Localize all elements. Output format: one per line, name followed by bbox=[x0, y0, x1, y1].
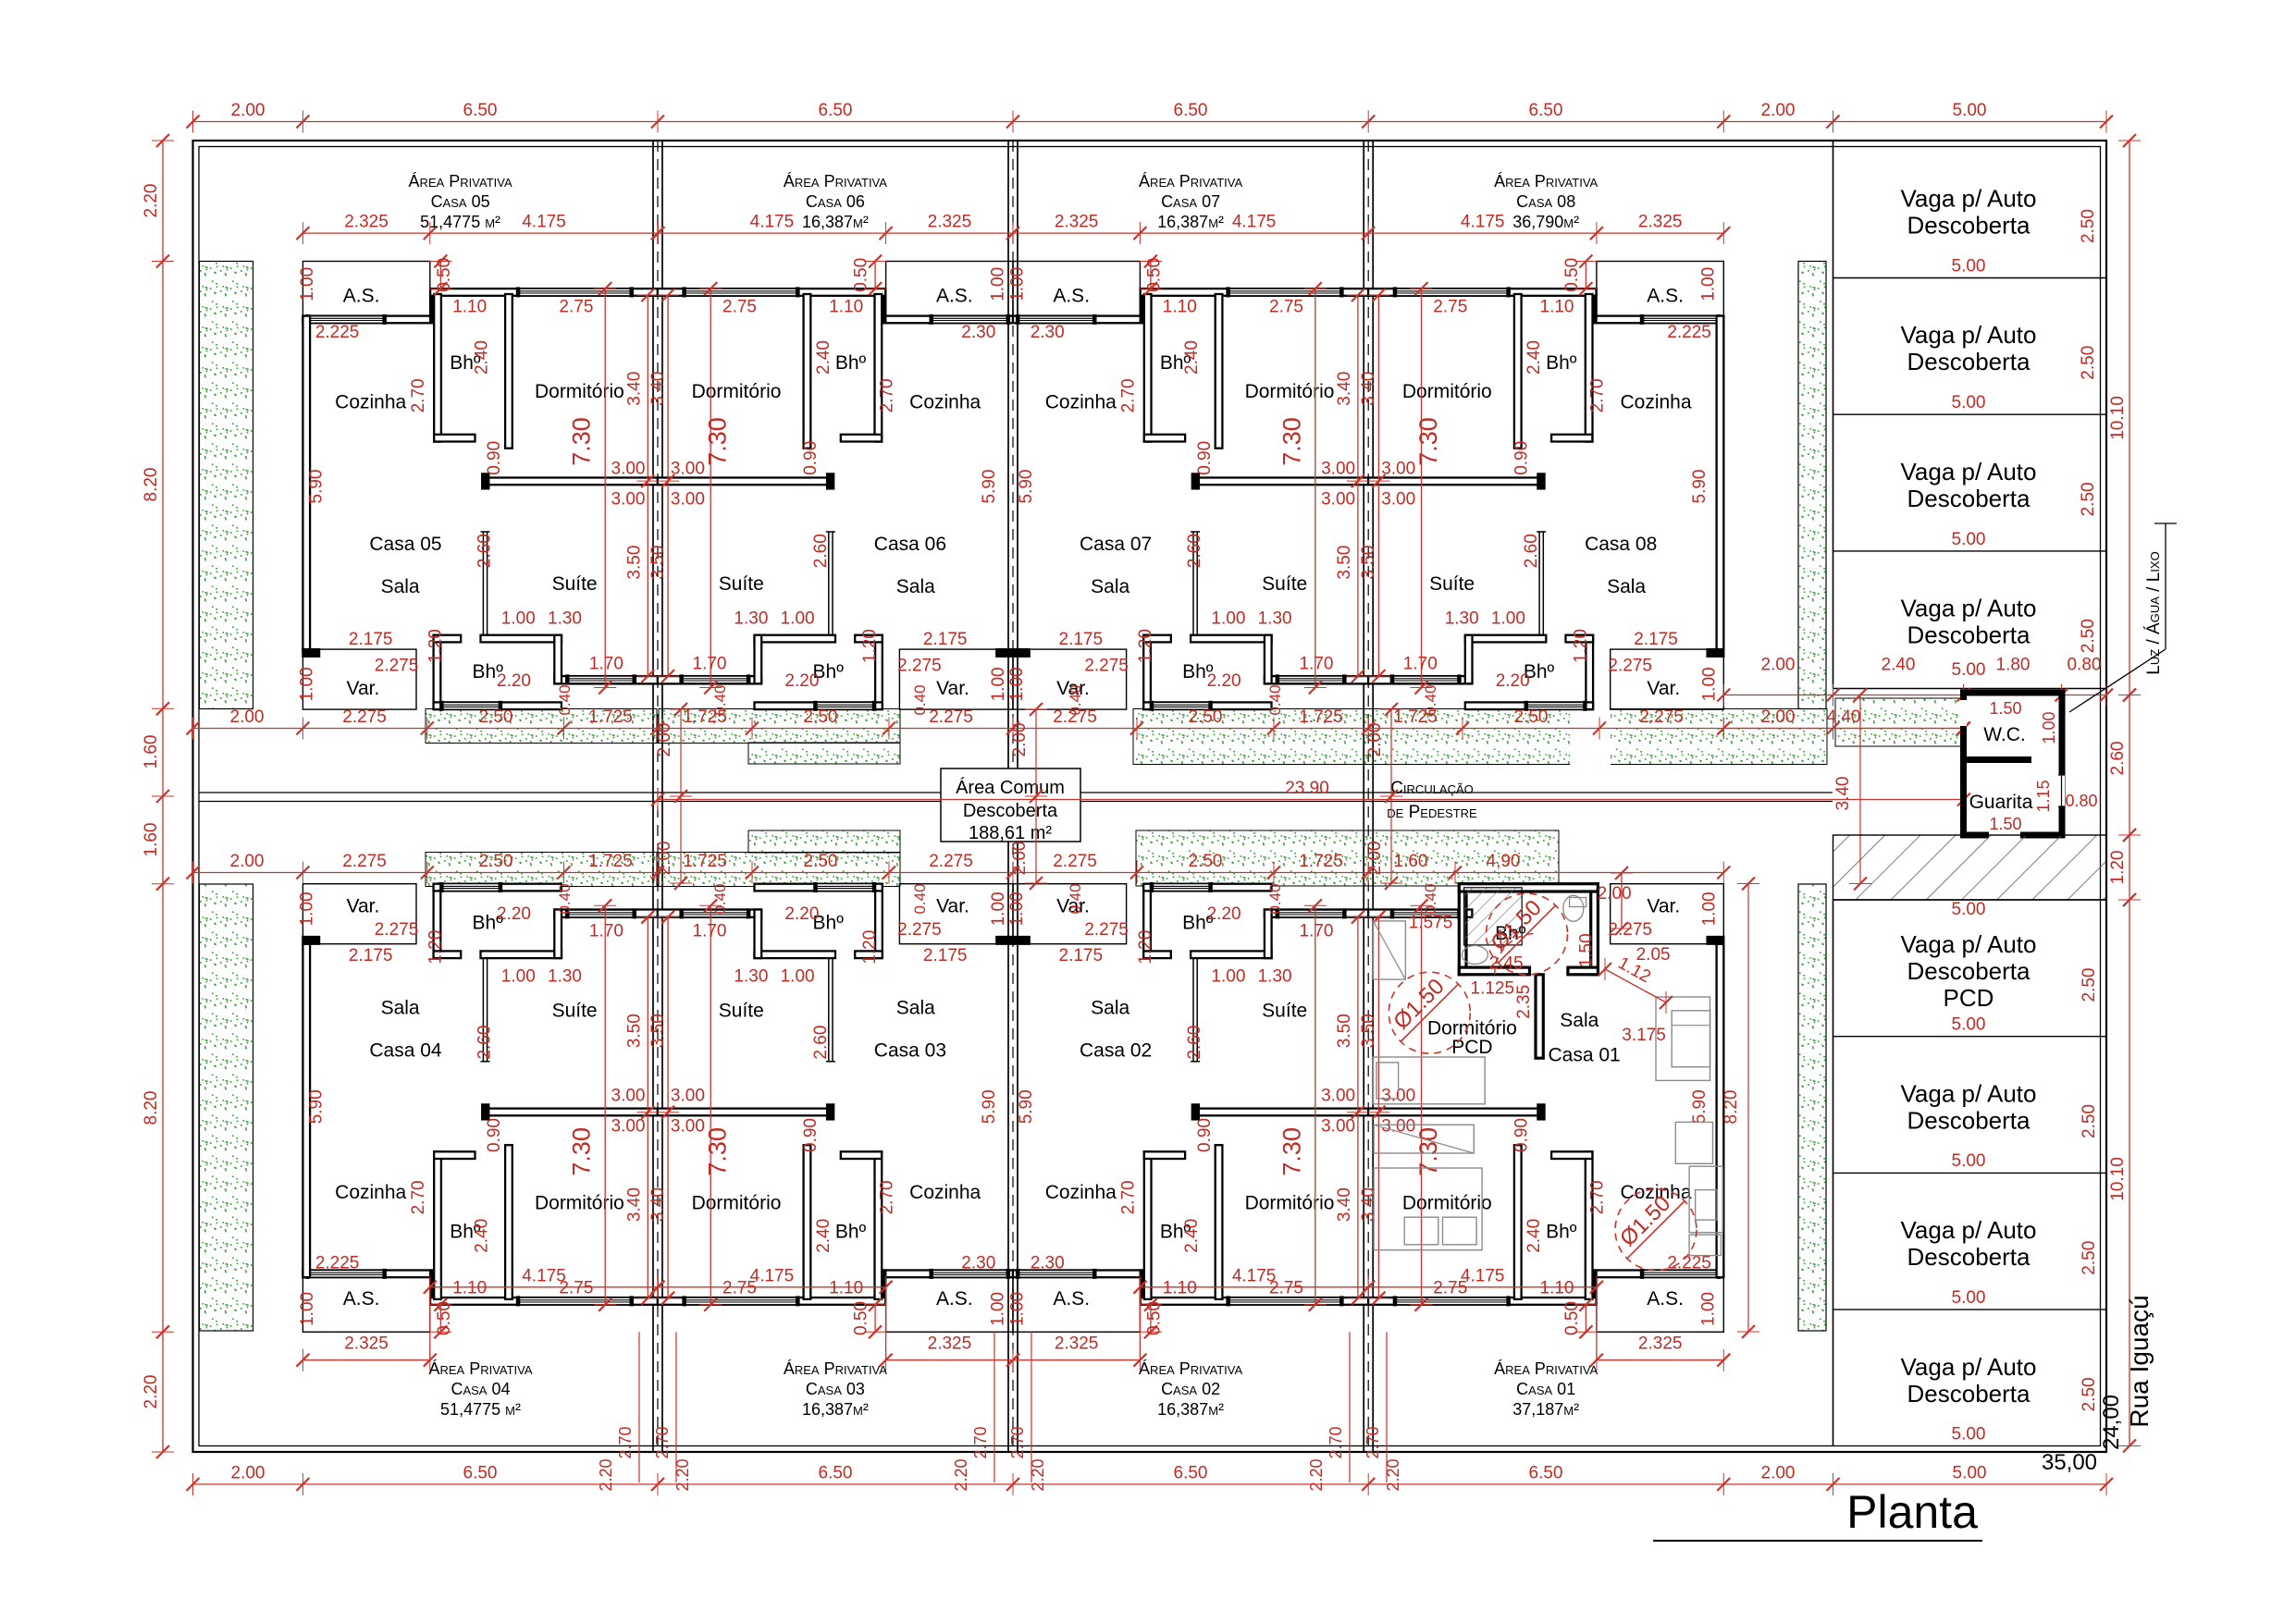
svg-text:2.40: 2.40 bbox=[1882, 656, 1916, 675]
svg-text:5.90: 5.90 bbox=[307, 470, 327, 504]
svg-text:2.20: 2.20 bbox=[1307, 1458, 1326, 1491]
svg-text:Área Privativa: Área Privativa bbox=[784, 1359, 887, 1378]
svg-text:Dormitório: Dormitório bbox=[692, 381, 782, 402]
svg-text:4.40: 4.40 bbox=[1827, 707, 1861, 727]
svg-text:2.50: 2.50 bbox=[2080, 1241, 2099, 1275]
svg-text:3.50: 3.50 bbox=[648, 546, 668, 580]
svg-text:Bhº: Bhº bbox=[835, 1221, 867, 1242]
svg-text:2.325: 2.325 bbox=[1638, 213, 1683, 232]
svg-text:Cozinha: Cozinha bbox=[335, 1182, 406, 1203]
svg-text:2.05: 2.05 bbox=[1636, 945, 1671, 965]
svg-text:Vaga p/ Auto: Vaga p/ Auto bbox=[1901, 1216, 2037, 1244]
svg-text:2.60: 2.60 bbox=[811, 1026, 831, 1060]
svg-text:Sala: Sala bbox=[381, 576, 420, 597]
svg-text:5.90: 5.90 bbox=[1017, 1089, 1036, 1124]
svg-text:1.10: 1.10 bbox=[829, 298, 863, 317]
svg-text:2.20: 2.20 bbox=[784, 671, 819, 691]
svg-text:2.60: 2.60 bbox=[1185, 1026, 1204, 1060]
svg-text:7.30: 7.30 bbox=[568, 1127, 596, 1176]
svg-text:2.70: 2.70 bbox=[616, 1426, 635, 1458]
svg-text:2.75: 2.75 bbox=[559, 298, 593, 317]
svg-text:2.00: 2.00 bbox=[1761, 1464, 1796, 1483]
svg-text:Vaga p/ Auto: Vaga p/ Auto bbox=[1901, 185, 2037, 213]
svg-text:0.40: 0.40 bbox=[556, 883, 574, 914]
svg-text:2.275: 2.275 bbox=[1608, 920, 1652, 940]
svg-text:2.225: 2.225 bbox=[1667, 323, 1711, 342]
svg-text:2.00: 2.00 bbox=[1010, 723, 1030, 757]
svg-text:4.175: 4.175 bbox=[1232, 213, 1277, 232]
svg-text:2.00: 2.00 bbox=[1365, 723, 1385, 757]
svg-text:0.90: 0.90 bbox=[1512, 1118, 1532, 1152]
svg-text:2.00: 2.00 bbox=[1761, 101, 1796, 120]
svg-text:1.30: 1.30 bbox=[1258, 967, 1292, 987]
svg-text:2.60: 2.60 bbox=[475, 534, 495, 568]
svg-text:Dormitório: Dormitório bbox=[1245, 1193, 1335, 1214]
svg-text:2.50: 2.50 bbox=[2079, 209, 2098, 243]
svg-text:2.50: 2.50 bbox=[1189, 707, 1223, 727]
svg-text:2.30: 2.30 bbox=[961, 323, 995, 342]
svg-text:2.50: 2.50 bbox=[2080, 1377, 2099, 1411]
svg-text:1.725: 1.725 bbox=[683, 852, 727, 871]
svg-text:1.80: 1.80 bbox=[1996, 656, 2031, 675]
svg-text:3.40: 3.40 bbox=[625, 372, 645, 406]
svg-text:2.70: 2.70 bbox=[971, 1426, 990, 1458]
svg-text:1.60: 1.60 bbox=[142, 823, 161, 857]
svg-text:3.00: 3.00 bbox=[671, 1087, 705, 1106]
svg-text:2.325: 2.325 bbox=[1055, 213, 1099, 232]
svg-text:Bhº: Bhº bbox=[1546, 1221, 1577, 1242]
svg-text:0.80: 0.80 bbox=[2065, 792, 2097, 810]
svg-text:5.90: 5.90 bbox=[980, 470, 999, 504]
svg-text:7.30: 7.30 bbox=[1414, 417, 1442, 466]
svg-text:2.325: 2.325 bbox=[928, 213, 972, 232]
svg-text:2.60: 2.60 bbox=[1185, 534, 1204, 568]
svg-text:3.00: 3.00 bbox=[671, 1117, 705, 1137]
svg-text:2.20: 2.20 bbox=[1029, 1458, 1047, 1491]
svg-text:0.50: 0.50 bbox=[435, 1301, 454, 1335]
svg-text:W.C.: W.C. bbox=[1983, 724, 2026, 745]
svg-text:0.50: 0.50 bbox=[852, 1301, 871, 1335]
svg-text:3.00: 3.00 bbox=[1321, 490, 1355, 510]
svg-text:0.50: 0.50 bbox=[1562, 1301, 1582, 1335]
svg-text:1.00: 1.00 bbox=[1007, 667, 1027, 701]
svg-text:1.30: 1.30 bbox=[1445, 609, 1479, 629]
svg-text:2.225: 2.225 bbox=[1667, 1253, 1711, 1273]
svg-text:Luz / Água / Lixo: Luz / Água / Lixo bbox=[2144, 551, 2164, 674]
svg-text:1.575: 1.575 bbox=[1409, 914, 1453, 933]
svg-text:2.275: 2.275 bbox=[375, 656, 419, 675]
svg-text:2.00: 2.00 bbox=[1010, 842, 1030, 876]
svg-text:5.90: 5.90 bbox=[1690, 470, 1710, 504]
svg-text:24,00: 24,00 bbox=[2099, 1395, 2124, 1450]
svg-text:1.00: 1.00 bbox=[297, 891, 316, 926]
svg-text:51,4775 m²: 51,4775 m² bbox=[420, 213, 500, 231]
svg-text:6.50: 6.50 bbox=[1174, 1464, 1208, 1483]
svg-text:Cozinha: Cozinha bbox=[1620, 392, 1691, 413]
svg-text:2.50: 2.50 bbox=[2079, 619, 2098, 653]
svg-text:0.40: 0.40 bbox=[711, 883, 729, 914]
svg-text:2.50: 2.50 bbox=[1189, 852, 1223, 871]
svg-text:2.70: 2.70 bbox=[409, 1180, 428, 1214]
svg-text:10.10: 10.10 bbox=[2108, 1157, 2128, 1201]
svg-text:5.90: 5.90 bbox=[980, 1089, 999, 1124]
svg-text:1.00: 1.00 bbox=[1007, 891, 1027, 926]
svg-text:2.60: 2.60 bbox=[475, 1026, 495, 1060]
svg-text:1.20: 1.20 bbox=[860, 930, 880, 965]
svg-text:3.00: 3.00 bbox=[611, 460, 646, 479]
svg-text:3.50: 3.50 bbox=[1359, 546, 1378, 580]
svg-text:0.90: 0.90 bbox=[801, 1118, 821, 1152]
svg-text:3.00: 3.00 bbox=[1381, 460, 1415, 479]
svg-text:3.00: 3.00 bbox=[1321, 460, 1355, 479]
svg-text:2.50: 2.50 bbox=[2080, 1104, 2099, 1138]
svg-text:2.40: 2.40 bbox=[473, 340, 492, 375]
svg-text:1.50: 1.50 bbox=[1989, 815, 2021, 833]
svg-text:Área Privativa: Área Privativa bbox=[1139, 172, 1242, 191]
svg-text:1.00: 1.00 bbox=[298, 267, 317, 301]
svg-text:1.00: 1.00 bbox=[989, 667, 1008, 701]
svg-text:1.00: 1.00 bbox=[2040, 711, 2058, 744]
svg-text:2.20: 2.20 bbox=[1207, 671, 1241, 691]
svg-text:Suíte: Suíte bbox=[1262, 1001, 1307, 1022]
svg-text:1.00: 1.00 bbox=[1008, 267, 1028, 301]
svg-text:2.40: 2.40 bbox=[1182, 340, 1202, 375]
svg-text:5.00: 5.00 bbox=[1953, 101, 1987, 120]
svg-text:2.45: 2.45 bbox=[1489, 953, 1524, 973]
svg-text:2.00: 2.00 bbox=[1761, 656, 1796, 675]
svg-text:2.20: 2.20 bbox=[673, 1458, 692, 1491]
svg-text:6.50: 6.50 bbox=[819, 1464, 853, 1483]
svg-text:1.10: 1.10 bbox=[1163, 1279, 1197, 1298]
svg-text:Cozinha: Cozinha bbox=[1045, 1182, 1117, 1203]
svg-text:5.00: 5.00 bbox=[1952, 1425, 1986, 1445]
svg-text:Casa 01: Casa 01 bbox=[1548, 1044, 1620, 1065]
svg-text:Descoberta: Descoberta bbox=[1907, 1380, 2031, 1408]
svg-text:35,00: 35,00 bbox=[2042, 1450, 2097, 1475]
svg-text:2.00: 2.00 bbox=[655, 723, 674, 757]
svg-text:A.S.: A.S. bbox=[1053, 1288, 1090, 1309]
svg-text:2.50: 2.50 bbox=[479, 852, 513, 871]
svg-text:1.60: 1.60 bbox=[1394, 852, 1428, 871]
svg-text:1.70: 1.70 bbox=[693, 655, 727, 674]
svg-text:2.00: 2.00 bbox=[1365, 842, 1385, 876]
svg-text:2.30: 2.30 bbox=[1031, 323, 1065, 342]
svg-text:37,187m²: 37,187m² bbox=[1512, 1400, 1579, 1419]
svg-text:1.00: 1.00 bbox=[989, 891, 1008, 926]
svg-text:0.50: 0.50 bbox=[852, 258, 871, 292]
svg-text:de Pedestre: de Pedestre bbox=[1387, 803, 1477, 822]
svg-text:Área Privativa: Área Privativa bbox=[409, 172, 512, 191]
svg-text:2.75: 2.75 bbox=[722, 298, 757, 317]
svg-text:Var.: Var. bbox=[936, 896, 969, 917]
svg-text:3.50: 3.50 bbox=[1335, 1014, 1354, 1048]
svg-text:Suíte: Suíte bbox=[552, 573, 598, 595]
svg-text:1.50: 1.50 bbox=[1989, 699, 2021, 718]
svg-text:51,4775 m²: 51,4775 m² bbox=[440, 1400, 521, 1419]
svg-text:2.70: 2.70 bbox=[409, 378, 428, 412]
svg-text:A.S.: A.S. bbox=[936, 286, 973, 307]
svg-text:2.175: 2.175 bbox=[349, 946, 393, 965]
svg-text:2.275: 2.275 bbox=[342, 852, 387, 871]
svg-text:Casa 01: Casa 01 bbox=[1516, 1380, 1575, 1398]
svg-text:Cozinha: Cozinha bbox=[335, 392, 406, 413]
svg-text:5.90: 5.90 bbox=[1690, 1089, 1710, 1124]
svg-text:0.40: 0.40 bbox=[911, 684, 929, 715]
svg-text:PCD: PCD bbox=[1451, 1037, 1492, 1058]
svg-text:2.20: 2.20 bbox=[1496, 671, 1530, 691]
svg-text:2.175: 2.175 bbox=[1634, 630, 1678, 649]
svg-text:0.40: 0.40 bbox=[1067, 684, 1084, 715]
svg-text:7.30: 7.30 bbox=[704, 417, 732, 466]
svg-text:Casa 05: Casa 05 bbox=[431, 192, 490, 211]
svg-text:2.75: 2.75 bbox=[1269, 1279, 1303, 1298]
svg-text:1.20: 1.20 bbox=[426, 930, 445, 965]
svg-text:2.175: 2.175 bbox=[923, 946, 968, 965]
svg-text:6.50: 6.50 bbox=[463, 1464, 498, 1483]
svg-text:Var.: Var. bbox=[1647, 678, 1680, 699]
svg-text:2.40: 2.40 bbox=[1524, 1219, 1544, 1253]
svg-text:Guarita: Guarita bbox=[1969, 792, 2033, 813]
svg-text:1.00: 1.00 bbox=[1699, 1292, 1719, 1326]
svg-text:Cozinha: Cozinha bbox=[909, 392, 981, 413]
svg-text:0.50: 0.50 bbox=[435, 258, 454, 292]
svg-text:Suíte: Suíte bbox=[719, 1001, 764, 1022]
svg-text:2.70: 2.70 bbox=[1588, 1180, 1608, 1214]
svg-text:3.50: 3.50 bbox=[625, 546, 645, 580]
svg-text:Dormitório: Dormitório bbox=[1402, 381, 1492, 402]
svg-text:2.20: 2.20 bbox=[142, 1375, 161, 1409]
svg-text:Descoberta: Descoberta bbox=[1907, 348, 2031, 375]
svg-text:1.70: 1.70 bbox=[589, 655, 623, 674]
svg-text:1.20: 1.20 bbox=[2108, 851, 2128, 885]
svg-text:2.325: 2.325 bbox=[928, 1334, 972, 1354]
svg-text:0.40: 0.40 bbox=[1067, 883, 1084, 914]
svg-text:1.20: 1.20 bbox=[1571, 629, 1590, 663]
svg-text:4,90: 4,90 bbox=[1487, 852, 1521, 871]
svg-text:1.20: 1.20 bbox=[860, 629, 880, 663]
svg-text:1.00: 1.00 bbox=[1699, 667, 1719, 701]
svg-text:1.00: 1.00 bbox=[1699, 891, 1719, 926]
svg-text:2.175: 2.175 bbox=[1059, 946, 1104, 965]
svg-text:Vaga p/ Auto: Vaga p/ Auto bbox=[1901, 1080, 2037, 1108]
svg-text:8.20: 8.20 bbox=[142, 1091, 161, 1125]
svg-text:1.70: 1.70 bbox=[1300, 922, 1334, 941]
svg-text:2.40: 2.40 bbox=[814, 340, 833, 375]
svg-text:Cozinha: Cozinha bbox=[909, 1182, 981, 1203]
svg-text:Descoberta: Descoberta bbox=[1907, 212, 2031, 240]
svg-text:2.20: 2.20 bbox=[784, 904, 819, 924]
svg-text:1.30: 1.30 bbox=[1258, 609, 1292, 629]
svg-text:5.90: 5.90 bbox=[307, 1089, 327, 1124]
svg-text:2.75: 2.75 bbox=[1433, 1279, 1467, 1298]
svg-text:8.20: 8.20 bbox=[142, 468, 161, 502]
svg-text:5.00: 5.00 bbox=[1953, 1464, 1987, 1483]
svg-text:2.60: 2.60 bbox=[1522, 534, 1541, 568]
svg-text:Suíte: Suíte bbox=[1429, 573, 1475, 595]
svg-text:A.S.: A.S. bbox=[936, 1288, 973, 1309]
svg-text:A.S.: A.S. bbox=[1647, 286, 1684, 307]
svg-text:2.50: 2.50 bbox=[804, 852, 838, 871]
svg-text:1.725: 1.725 bbox=[588, 852, 633, 871]
svg-text:Área Privativa: Área Privativa bbox=[1139, 1359, 1242, 1378]
svg-text:3.00: 3.00 bbox=[611, 1087, 646, 1106]
svg-text:2.275: 2.275 bbox=[1084, 920, 1129, 940]
svg-text:2.325: 2.325 bbox=[344, 1334, 389, 1354]
svg-text:3.40: 3.40 bbox=[625, 1187, 645, 1222]
svg-text:2.30: 2.30 bbox=[961, 1253, 995, 1273]
svg-text:1.10: 1.10 bbox=[1163, 298, 1197, 317]
svg-text:1.00: 1.00 bbox=[1211, 967, 1245, 987]
svg-text:2.75: 2.75 bbox=[722, 1279, 757, 1298]
svg-text:Dormitório: Dormitório bbox=[692, 1193, 782, 1214]
svg-text:0.50: 0.50 bbox=[1144, 258, 1164, 292]
svg-text:16,387m²: 16,387m² bbox=[802, 1400, 869, 1419]
svg-text:2.325: 2.325 bbox=[1055, 1334, 1099, 1354]
svg-text:1.10: 1.10 bbox=[1540, 298, 1574, 317]
svg-text:Descoberta: Descoberta bbox=[1907, 621, 2031, 649]
svg-text:5.00: 5.00 bbox=[1952, 660, 1986, 680]
svg-text:A.S.: A.S. bbox=[1053, 286, 1090, 307]
svg-text:16,387m²: 16,387m² bbox=[1157, 1400, 1224, 1419]
svg-text:3.40: 3.40 bbox=[1833, 777, 1853, 811]
svg-text:2.275: 2.275 bbox=[375, 920, 419, 940]
svg-text:2.00: 2.00 bbox=[1761, 707, 1796, 727]
svg-text:1.20: 1.20 bbox=[426, 629, 445, 663]
svg-text:6.50: 6.50 bbox=[819, 101, 853, 120]
svg-text:3.00: 3.00 bbox=[1381, 490, 1415, 510]
svg-text:16,387m²: 16,387m² bbox=[802, 213, 869, 231]
svg-text:Vaga p/ Auto: Vaga p/ Auto bbox=[1901, 458, 2037, 486]
svg-text:2.60: 2.60 bbox=[811, 534, 831, 568]
svg-text:2.20: 2.20 bbox=[1207, 904, 1241, 924]
svg-text:2.40: 2.40 bbox=[814, 1219, 833, 1253]
svg-text:4.175: 4.175 bbox=[750, 213, 795, 232]
svg-text:2.20: 2.20 bbox=[497, 671, 531, 691]
svg-text:2.40: 2.40 bbox=[473, 1219, 492, 1253]
svg-text:Descoberta: Descoberta bbox=[1907, 1243, 2031, 1271]
svg-text:8.20: 8.20 bbox=[1722, 1090, 1741, 1125]
svg-text:2.275: 2.275 bbox=[929, 707, 973, 727]
svg-text:1.00: 1.00 bbox=[781, 967, 815, 987]
svg-text:0.40: 0.40 bbox=[1266, 684, 1284, 715]
svg-text:2.275: 2.275 bbox=[342, 707, 387, 727]
svg-text:16,387m²: 16,387m² bbox=[1157, 213, 1224, 231]
svg-text:0.90: 0.90 bbox=[1512, 441, 1532, 475]
svg-text:2.70: 2.70 bbox=[877, 1180, 896, 1214]
svg-text:1.00: 1.00 bbox=[781, 609, 815, 629]
svg-text:A.S.: A.S. bbox=[1647, 1288, 1684, 1309]
svg-text:2.175: 2.175 bbox=[349, 630, 393, 649]
svg-text:Var.: Var. bbox=[1647, 896, 1680, 917]
svg-text:2.50: 2.50 bbox=[2079, 346, 2098, 380]
svg-text:6.50: 6.50 bbox=[1174, 101, 1208, 120]
svg-text:0.40: 0.40 bbox=[1422, 883, 1439, 914]
svg-text:1.60: 1.60 bbox=[142, 735, 161, 769]
svg-text:1.00: 1.00 bbox=[988, 267, 1007, 301]
svg-text:Cozinha: Cozinha bbox=[1045, 392, 1117, 413]
svg-text:3.00: 3.00 bbox=[611, 490, 646, 510]
svg-text:5.00: 5.00 bbox=[1952, 1015, 1986, 1035]
svg-text:2.40: 2.40 bbox=[1524, 340, 1544, 375]
svg-text:Casa 03: Casa 03 bbox=[874, 1040, 946, 1062]
svg-text:2.00: 2.00 bbox=[230, 852, 265, 871]
svg-text:2.20: 2.20 bbox=[142, 184, 161, 218]
svg-text:Sala: Sala bbox=[1607, 576, 1646, 597]
svg-text:2.70: 2.70 bbox=[1364, 1426, 1382, 1458]
svg-text:Sala: Sala bbox=[1091, 576, 1129, 597]
svg-text:2.60: 2.60 bbox=[2108, 742, 2128, 776]
svg-text:1.00: 1.00 bbox=[501, 967, 536, 987]
svg-text:2.70: 2.70 bbox=[1327, 1426, 1345, 1458]
svg-text:Dormitório: Dormitório bbox=[1402, 1193, 1492, 1214]
svg-text:Sala: Sala bbox=[381, 998, 420, 1019]
svg-text:1.50: 1.50 bbox=[1576, 933, 1596, 967]
svg-text:3.50: 3.50 bbox=[1335, 546, 1354, 580]
svg-text:3.00: 3.00 bbox=[1321, 1117, 1355, 1137]
svg-text:10.10: 10.10 bbox=[2108, 396, 2128, 440]
svg-text:2.225: 2.225 bbox=[315, 1253, 360, 1273]
svg-text:Suíte: Suíte bbox=[552, 1001, 598, 1022]
svg-text:3.00: 3.00 bbox=[611, 1117, 646, 1137]
svg-text:1.70: 1.70 bbox=[1403, 655, 1438, 674]
svg-text:0.40: 0.40 bbox=[1266, 883, 1284, 914]
svg-text:3.00: 3.00 bbox=[671, 460, 705, 479]
svg-text:1.125: 1.125 bbox=[1471, 979, 1515, 999]
svg-text:Casa 06: Casa 06 bbox=[874, 534, 946, 555]
svg-text:2.175: 2.175 bbox=[923, 630, 968, 649]
svg-text:2.70: 2.70 bbox=[1588, 378, 1608, 412]
svg-text:2.70: 2.70 bbox=[1119, 378, 1139, 412]
svg-text:0.90: 0.90 bbox=[485, 1118, 504, 1152]
svg-text:0.50: 0.50 bbox=[1144, 1301, 1164, 1335]
svg-text:Casa 02: Casa 02 bbox=[1161, 1380, 1220, 1398]
svg-text:7.30: 7.30 bbox=[568, 417, 596, 466]
svg-text:1.10: 1.10 bbox=[452, 1279, 487, 1298]
svg-text:Área Comum: Área Comum bbox=[956, 777, 1065, 798]
svg-text:5.00: 5.00 bbox=[1952, 1151, 1986, 1171]
svg-text:1.00: 1.00 bbox=[1211, 609, 1245, 629]
svg-text:2.75: 2.75 bbox=[1433, 298, 1467, 317]
svg-text:2.50: 2.50 bbox=[2080, 968, 2099, 1002]
svg-text:0.90: 0.90 bbox=[485, 441, 504, 475]
svg-text:1.10: 1.10 bbox=[1540, 1279, 1574, 1298]
svg-text:7.30: 7.30 bbox=[1278, 1127, 1305, 1176]
svg-text:Suíte: Suíte bbox=[719, 573, 764, 595]
svg-text:Sala: Sala bbox=[1560, 1010, 1599, 1031]
svg-text:A.S.: A.S. bbox=[343, 286, 380, 307]
svg-text:3.175: 3.175 bbox=[1622, 1026, 1666, 1045]
svg-text:Casa 07: Casa 07 bbox=[1080, 534, 1152, 555]
svg-text:1.30: 1.30 bbox=[548, 967, 582, 987]
svg-text:3.40: 3.40 bbox=[1335, 372, 1354, 406]
svg-text:Casa 02: Casa 02 bbox=[1080, 1040, 1152, 1062]
svg-text:2.75: 2.75 bbox=[1269, 298, 1303, 317]
svg-text:PCD: PCD bbox=[1944, 984, 1994, 1012]
svg-text:Bhº: Bhº bbox=[835, 352, 867, 374]
svg-text:5.00: 5.00 bbox=[1952, 1288, 1986, 1308]
svg-text:Var.: Var. bbox=[347, 896, 380, 917]
svg-text:Casa 08: Casa 08 bbox=[1516, 192, 1575, 211]
svg-text:1.20: 1.20 bbox=[1136, 930, 1155, 965]
svg-text:1.30: 1.30 bbox=[548, 609, 582, 629]
svg-text:7.30: 7.30 bbox=[1278, 417, 1305, 466]
svg-text:2.50: 2.50 bbox=[479, 707, 513, 727]
svg-text:1.00: 1.00 bbox=[298, 1292, 317, 1326]
svg-text:0.40: 0.40 bbox=[556, 684, 574, 715]
svg-text:1.30: 1.30 bbox=[734, 967, 768, 987]
svg-text:36,790m²: 36,790m² bbox=[1512, 213, 1579, 231]
svg-text:0.50: 0.50 bbox=[1562, 258, 1582, 292]
